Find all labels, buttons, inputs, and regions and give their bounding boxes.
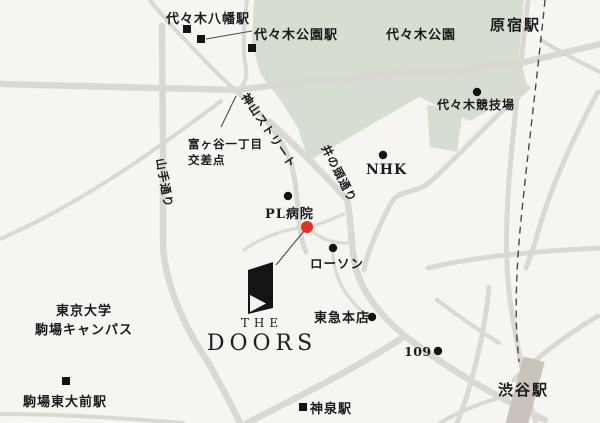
road-east-horizontal	[428, 248, 600, 268]
label-yoyogi-hachiman-station: 代々木八幡駅	[166, 8, 250, 27]
road-komaba	[0, 101, 221, 239]
marker-lawson	[329, 244, 337, 252]
the-doors-logo-text: THE DOORS	[204, 316, 320, 356]
label-tokyu-honten: 東急本店	[314, 307, 370, 326]
logo-the: THE	[204, 316, 320, 330]
logo-doors: DOORS	[204, 331, 320, 356]
marker-pl-hospital	[284, 192, 292, 200]
marker-nhk	[379, 151, 387, 159]
road-bottom-edge	[0, 414, 183, 423]
road-shibuya-connector	[437, 300, 499, 343]
marker-yoyogi-koen-station	[197, 35, 205, 43]
label-yoyogi-park: 代々木公園	[386, 24, 456, 43]
label-harajuku-station: 原宿駅	[490, 14, 541, 35]
label-todai-line1: 東京大学	[56, 304, 112, 319]
access-map: 代々木八幡駅 代々木公園駅 代々木公園 原宿駅 代々木競技場 NHK 神山ストリ…	[0, 0, 600, 423]
label-tomigaya-line2: 交差点	[188, 153, 226, 167]
label-yoyogi-stadium: 代々木競技場	[437, 96, 515, 113]
marker-shinsen-station	[299, 403, 307, 411]
leader-tomigaya-crossing	[221, 96, 236, 127]
label-yoyogi-koen-station: 代々木公園駅	[254, 24, 338, 43]
road-northeast	[526, 92, 598, 268]
label-shibuya-station: 渋谷駅	[498, 379, 549, 400]
label-komaba-todaimae-station: 駒場東大前駅	[23, 391, 107, 410]
label-nhk: NHK	[366, 162, 407, 178]
label-tomigaya-line1: 富ヶ谷一丁目	[188, 137, 263, 151]
label-todai-komaba-campus: 東京大学 駒場キャンパス	[28, 303, 140, 341]
label-todai-line2: 駒場キャンパス	[35, 323, 133, 338]
label-pl-hospital: PL病院	[265, 203, 314, 222]
marker-yoyogi-koen-station-exit	[248, 44, 256, 52]
label-lawson: ローソン	[310, 253, 364, 272]
label-shinsen-station: 神泉駅	[310, 398, 352, 417]
marker-yoyogi-stadium	[473, 88, 481, 96]
label-tomigaya-crossing: 富ヶ谷一丁目 交差点	[188, 137, 278, 168]
leader-the-doors	[276, 231, 304, 265]
label-shibuya-109: 109	[404, 344, 432, 359]
the-doors-location-marker	[301, 221, 313, 233]
marker-shibuya-109	[434, 347, 442, 355]
marker-komaba-todaimae-station	[62, 377, 70, 385]
street-lawson	[306, 227, 352, 243]
